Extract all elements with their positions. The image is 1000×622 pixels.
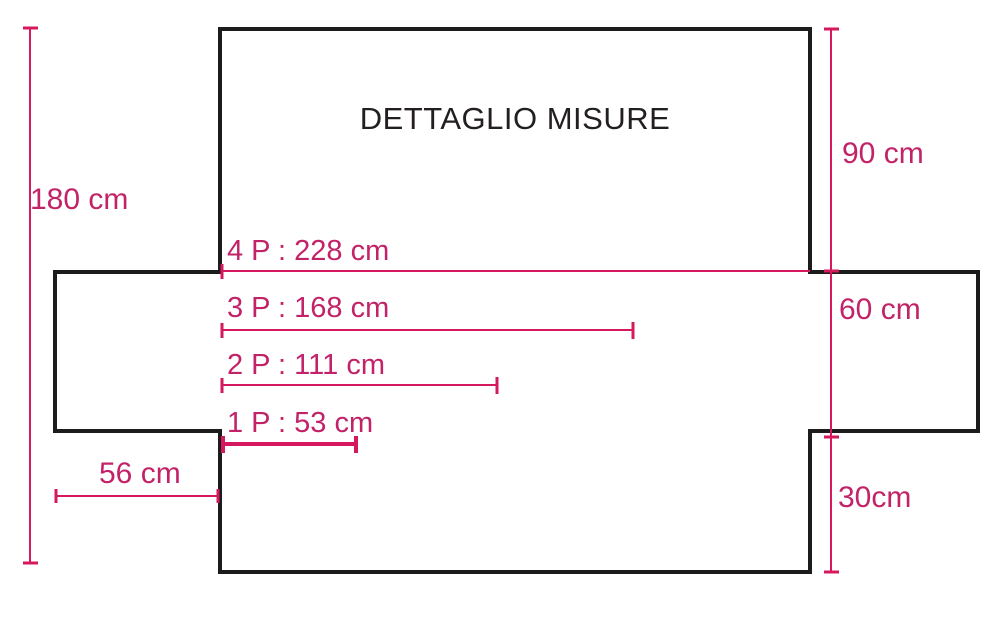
- label-armrest-width: 56 cm: [99, 457, 181, 490]
- label-4-seats: 4 P : 228 cm: [227, 236, 389, 268]
- label-3-seats: 3 P : 168 cm: [227, 293, 389, 325]
- dim-line-total-height: [23, 28, 38, 563]
- measurement-diagram: DETTAGLIO MISURE 180 cm 90 cm 60 cm 30cm…: [0, 0, 1000, 622]
- label-back-height: 90 cm: [842, 137, 924, 170]
- label-1-seat: 1 P : 53 cm: [227, 408, 373, 440]
- label-2-seats: 2 P : 111 cm: [227, 350, 385, 382]
- dim-line-right-heights: [824, 29, 839, 572]
- label-total-height: 180 cm: [30, 183, 128, 216]
- label-side-depth: 60 cm: [839, 293, 921, 326]
- dim-line-armrest-width: [55, 489, 219, 503]
- diagram-title: DETTAGLIO MISURE: [220, 101, 810, 137]
- label-front-drop: 30cm: [838, 481, 911, 514]
